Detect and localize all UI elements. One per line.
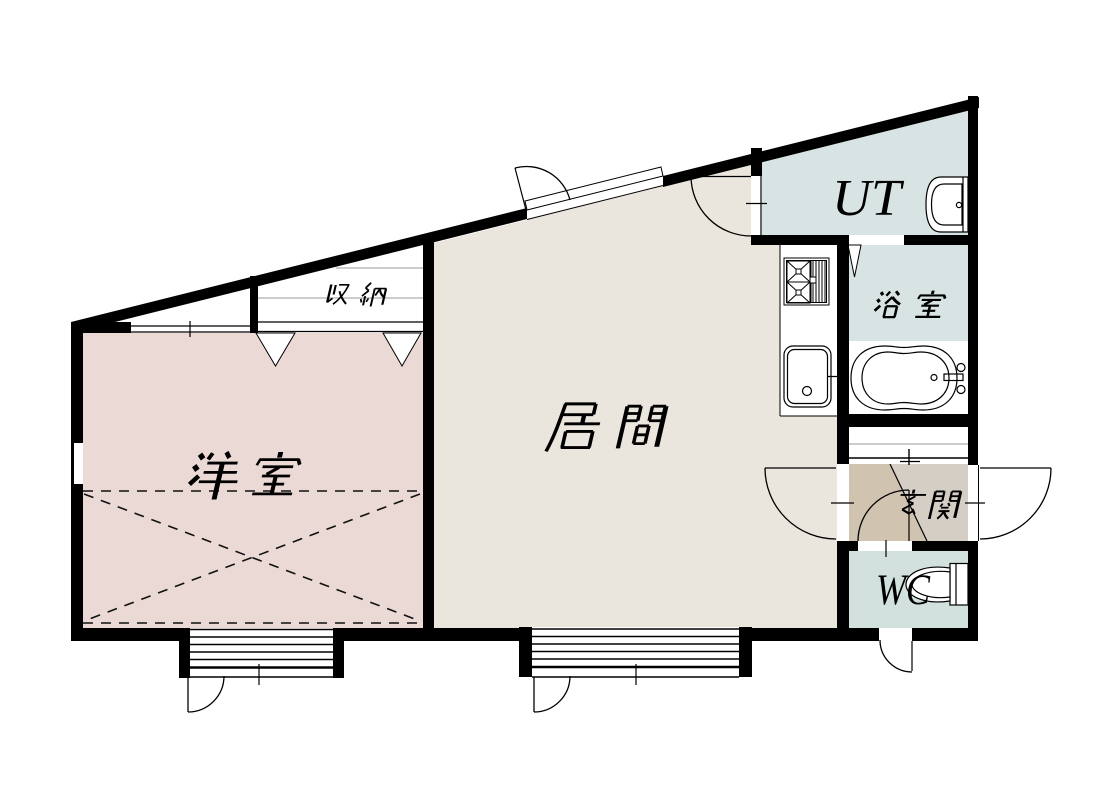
- svg-text:UT: UT: [832, 170, 904, 227]
- svg-text:WC: WC: [876, 567, 931, 614]
